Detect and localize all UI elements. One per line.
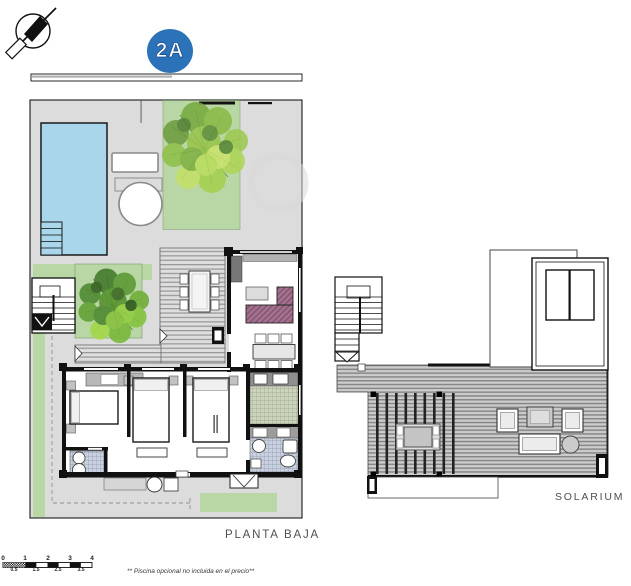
lower-terrace [367,476,498,498]
ac-unit [230,474,258,488]
solarium-stairs [335,277,382,362]
lounge-sofa [519,434,560,454]
pergola-table [396,424,440,450]
tv-unit [246,287,268,300]
scale-sublabel-15: 1.5 [33,567,40,573]
bathroom-3 [250,438,298,472]
plan-drawing [0,0,631,586]
side-table [562,436,579,453]
scale-label-1: 1 [23,555,27,562]
solarium-plan [335,250,608,498]
bathroom-2 [250,372,298,438]
deck-door-marker [596,454,608,478]
scale-label-3: 3 [68,555,72,562]
scale-label-2: 2 [46,555,50,562]
skylight-window [546,270,594,320]
stair-bulkhead [490,250,608,370]
section-bar [31,74,302,81]
lounge-armchair-1 [497,409,518,432]
ground-floor-plan [30,100,305,518]
scale-sublabel-25: 2.5 [55,567,62,573]
lounge-armchair-2 [562,409,583,432]
kitchen-counter [243,255,297,262]
coffee-table [527,407,553,427]
pool-steps [41,222,62,255]
entrance-walkway [75,345,161,363]
scale-sublabel-35: 3.5 [78,567,85,573]
north-arrow-icon [6,8,56,59]
scale-label-0: 0 [1,555,5,562]
scale-sublabel-05: 0.5 [11,567,18,573]
floor-plan-sheet: 2A PLANTA BAJA SOLARIUM 0 1 2 3 4 0.5 1.… [0,0,631,586]
ground-floor-label: PLANTA BAJA [225,529,320,541]
exterior-stairs [32,278,75,333]
indoor-dining-set [253,334,295,370]
swimming-pool [41,123,107,255]
solarium-label: SOLARIUM [555,491,624,503]
sunbed [112,153,158,172]
unit-badge: 2A [147,29,193,73]
scale-label-4: 4 [90,555,94,562]
pool-disclaimer-note: ** Piscina opcional no incluida en el pr… [127,568,254,575]
